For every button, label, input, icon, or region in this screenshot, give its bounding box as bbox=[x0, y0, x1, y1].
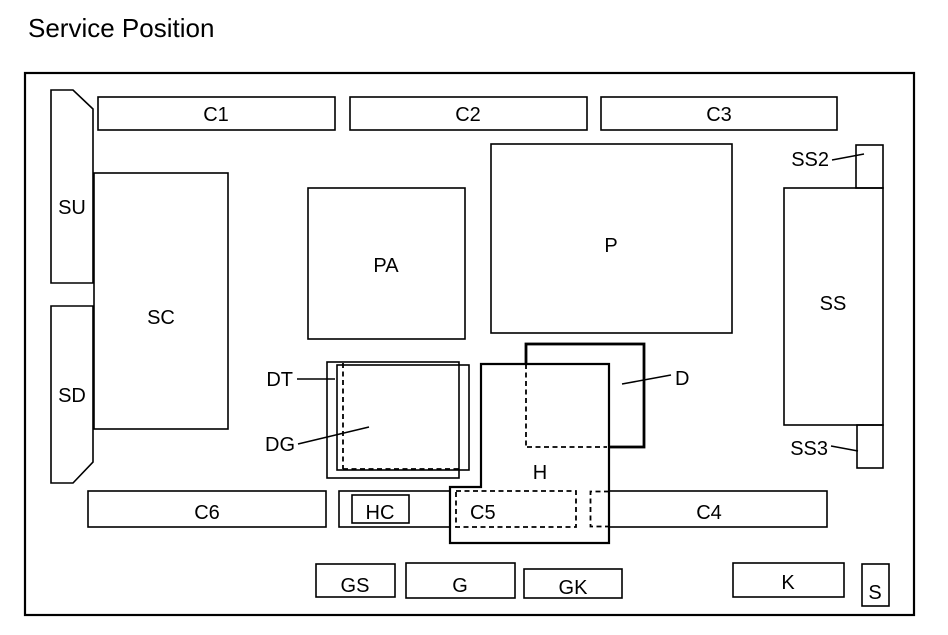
component-dg-shape bbox=[327, 362, 459, 478]
component-sc-shape bbox=[94, 173, 228, 429]
component-s-label: S bbox=[868, 582, 881, 604]
component-c4-label: C4 bbox=[696, 502, 722, 524]
service-position-diagram: Service Position C1 C2 C3 SU SD bbox=[0, 0, 948, 635]
component-ss2-label: SS2 bbox=[791, 149, 829, 171]
callout-ss2-leader bbox=[832, 154, 864, 160]
component-dg-label: DG bbox=[265, 434, 295, 456]
component-d-label: D bbox=[675, 368, 689, 390]
component-c1-label: C1 bbox=[203, 104, 229, 126]
callout-dg-leader bbox=[298, 427, 369, 444]
page-title: Service Position bbox=[28, 13, 214, 43]
component-c2-label: C2 bbox=[455, 104, 481, 126]
component-hc-label: HC bbox=[366, 502, 395, 524]
component-dt-hidden-outline bbox=[343, 363, 459, 469]
component-g-label: G bbox=[452, 575, 468, 597]
callout-ss3-leader bbox=[831, 446, 858, 451]
component-gk-label: GK bbox=[559, 577, 589, 599]
component-dg-inner-shape bbox=[337, 365, 469, 470]
component-su-shape bbox=[51, 90, 93, 283]
component-k-label: K bbox=[781, 572, 795, 594]
component-pa-label: PA bbox=[373, 255, 399, 277]
component-sc-label: SC bbox=[147, 307, 175, 329]
component-dt-label: DT bbox=[266, 369, 293, 391]
component-c3-label: C3 bbox=[706, 104, 732, 126]
component-gs-label: GS bbox=[341, 575, 370, 597]
component-h-label: H bbox=[533, 462, 547, 484]
component-c6-label: C6 bbox=[194, 502, 220, 524]
component-ss-label: SS bbox=[820, 293, 847, 315]
component-ss3-label: SS3 bbox=[790, 438, 828, 460]
component-su-label: SU bbox=[58, 197, 86, 219]
component-ss2-shape bbox=[856, 145, 883, 188]
component-sd-label: SD bbox=[58, 385, 86, 407]
service-position-page: Service Position C1 C2 C3 SU SD bbox=[0, 0, 948, 635]
component-c5-label: C5 bbox=[470, 502, 496, 524]
component-hc-strip-shape bbox=[339, 491, 451, 527]
component-ss3-shape bbox=[857, 425, 883, 468]
component-p-label: P bbox=[604, 235, 617, 257]
